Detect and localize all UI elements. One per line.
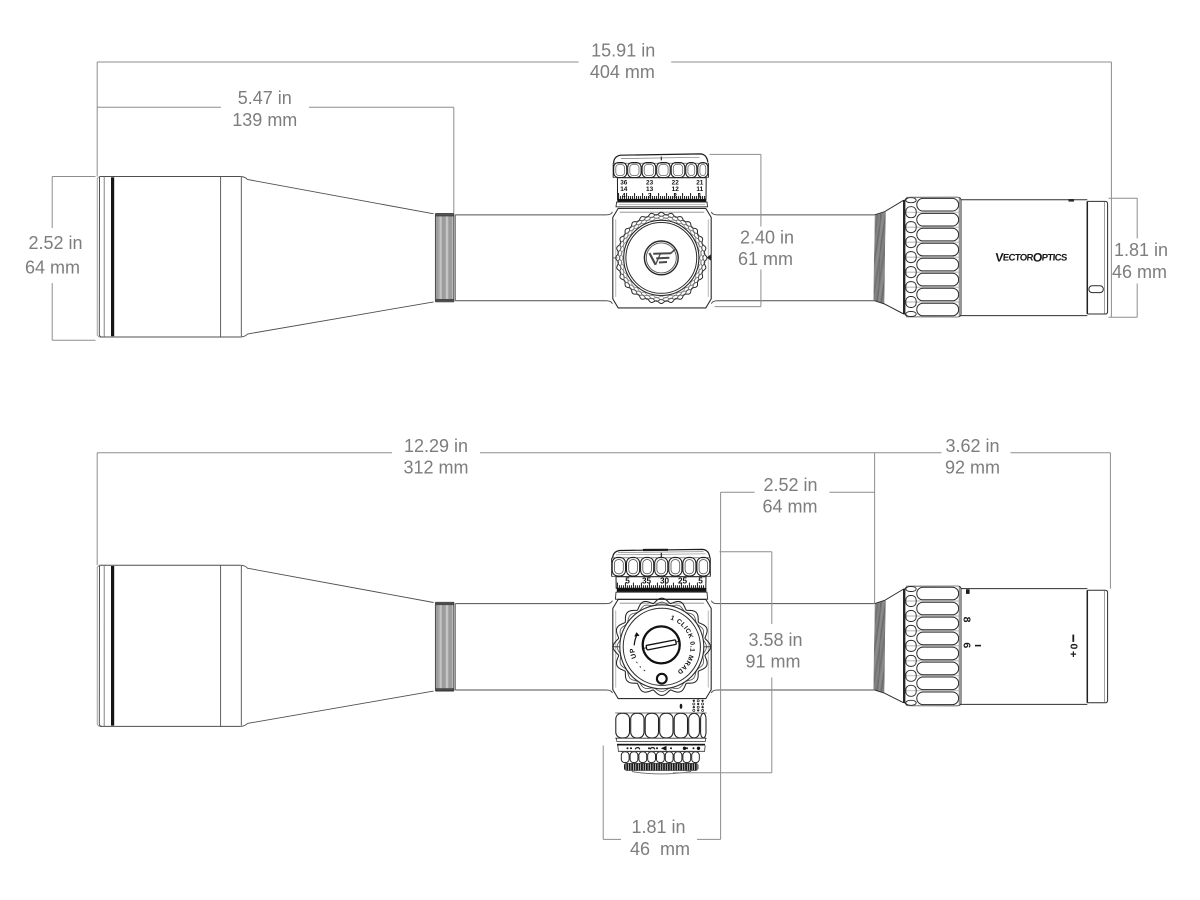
svg-text:312 mm: 312 mm [403,457,468,477]
svg-text:5: 5 [698,577,703,586]
svg-text:6: 6 [961,642,973,648]
svg-text:1.81 in: 1.81 in [1114,240,1168,260]
svg-text:8: 8 [961,617,973,623]
svg-text:2.40 in: 2.40 in [740,227,794,247]
svg-text:61 mm: 61 mm [738,249,793,269]
svg-text:2.52 in: 2.52 in [28,233,82,253]
svg-text:+: + [1070,649,1076,661]
svg-text:3.62 in: 3.62 in [945,436,999,456]
svg-text:5.47 in: 5.47 in [238,88,292,108]
svg-text:5: 5 [625,577,630,586]
svg-text:25: 25 [678,577,688,586]
svg-text:15.91 in: 15.91 in [591,41,655,61]
svg-text:91 mm: 91 mm [745,652,800,672]
svg-text:46 mm: 46 mm [630,839,690,859]
svg-text:35: 35 [642,577,652,586]
svg-text:404 mm: 404 mm [590,62,655,82]
svg-text:46 mm: 46 mm [1112,262,1167,282]
svg-text:64 mm: 64 mm [25,258,80,278]
svg-text:30: 30 [660,577,670,586]
svg-text:VECTOROPTICS: VECTOROPTICS [995,250,1068,264]
svg-text:12.29 in: 12.29 in [404,436,468,456]
svg-text:2.52 in: 2.52 in [763,475,817,495]
svg-text:3.58 in: 3.58 in [748,630,802,650]
svg-text:92 mm: 92 mm [945,457,1000,477]
svg-text:64 mm: 64 mm [762,496,817,516]
svg-text:139 mm: 139 mm [232,110,297,130]
svg-text:1.81 in: 1.81 in [631,817,685,837]
